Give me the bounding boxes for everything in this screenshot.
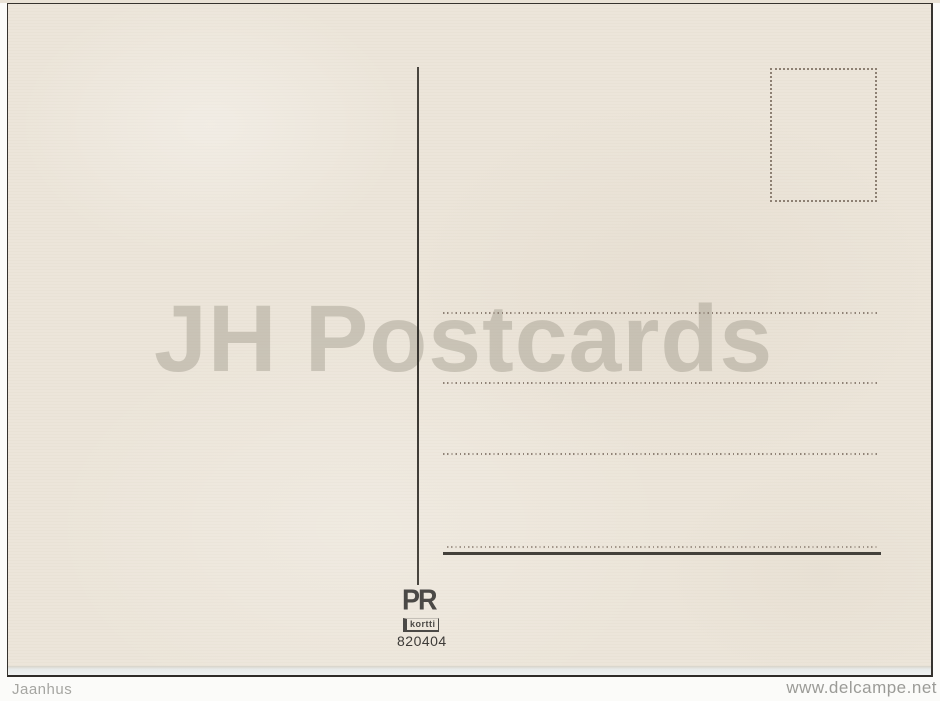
site-watermark: www.delcampe.net xyxy=(786,678,937,698)
address-line-2 xyxy=(443,382,879,384)
publisher-logo: PR kortti xyxy=(402,587,439,632)
address-line-1 xyxy=(443,312,879,314)
address-line-3 xyxy=(443,453,879,455)
writing-line-dotted xyxy=(447,546,879,548)
writing-line-solid xyxy=(443,552,881,555)
postcard-back: JH Postcards PR kortti 820404 xyxy=(7,3,933,677)
publisher-name: kortti xyxy=(403,618,439,632)
divider-line xyxy=(417,67,419,585)
stamp-box xyxy=(770,68,877,202)
seller-watermark: Jaanhus xyxy=(12,681,72,698)
card-bottom-edge xyxy=(8,666,931,675)
publisher-initials: PR xyxy=(402,586,439,614)
serial-number: 820404 xyxy=(397,633,447,649)
watermark-text: JH Postcards xyxy=(154,292,773,387)
